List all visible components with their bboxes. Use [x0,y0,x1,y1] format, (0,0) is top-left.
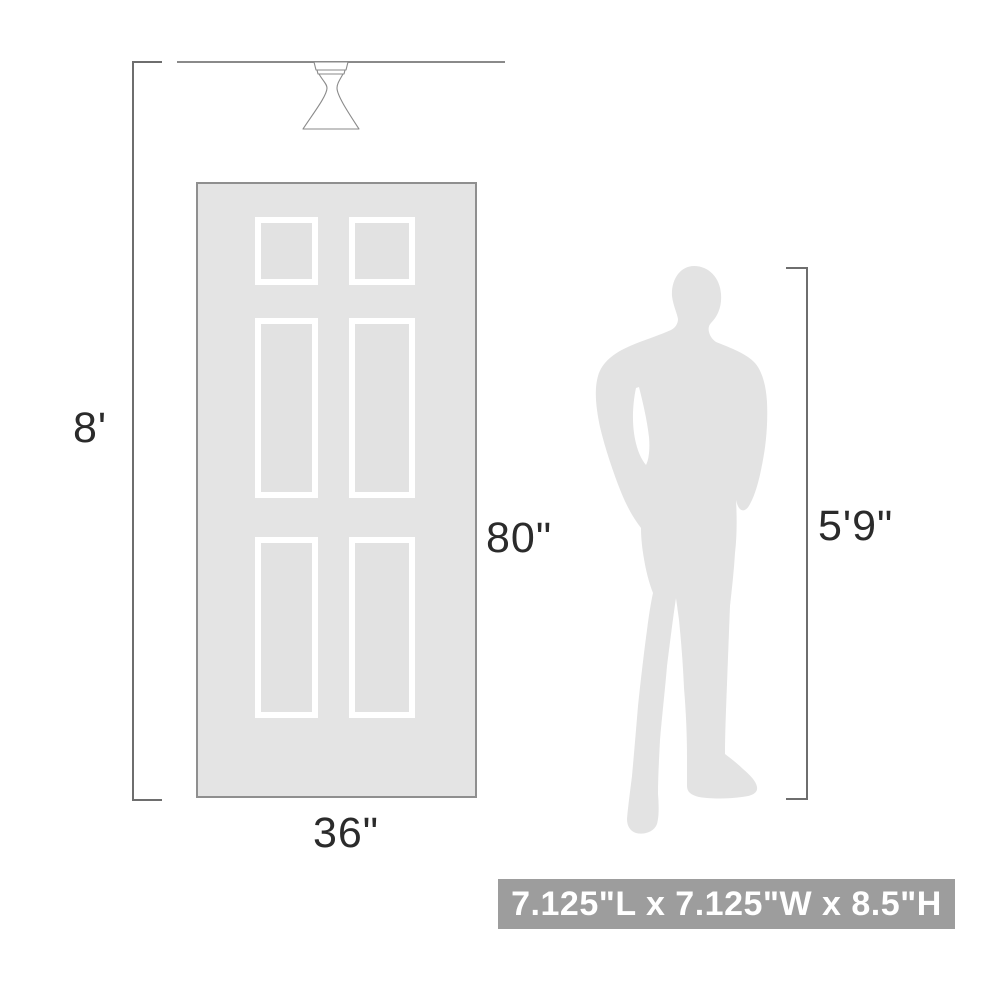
door-panel [255,217,318,285]
six-panel-door [196,182,477,798]
door-panel [255,318,318,498]
wall-height-dimension-line [132,61,134,801]
person-height-bottom-tick [786,798,808,800]
fixture-dimensions-text: 7.125"L x 7.125"W x 8.5"H [511,885,942,923]
door-panel [349,318,415,498]
wall-height-top-tick [132,61,162,63]
person-height-dimension-line [806,267,808,800]
door-height-label: 80" [486,517,552,560]
flush-mount-light-icon [300,60,364,132]
person-silhouette [590,266,775,836]
fixture-dimensions-banner: 7.125"L x 7.125"W x 8.5"H [498,879,955,929]
person-height-label: 5'9" [818,505,893,548]
door-width-label: 36" [296,812,396,855]
wall-height-label: 8' [55,407,125,450]
person-height-top-tick [786,267,808,269]
door-panel [349,217,415,285]
door-panel [349,537,415,718]
wall-height-bottom-tick [132,799,162,801]
door-panel [255,537,318,718]
product-dimension-diagram: 8' 80" 36" 5'9" 7.125"L x 7.125"W x 8.5"… [0,0,1000,1000]
